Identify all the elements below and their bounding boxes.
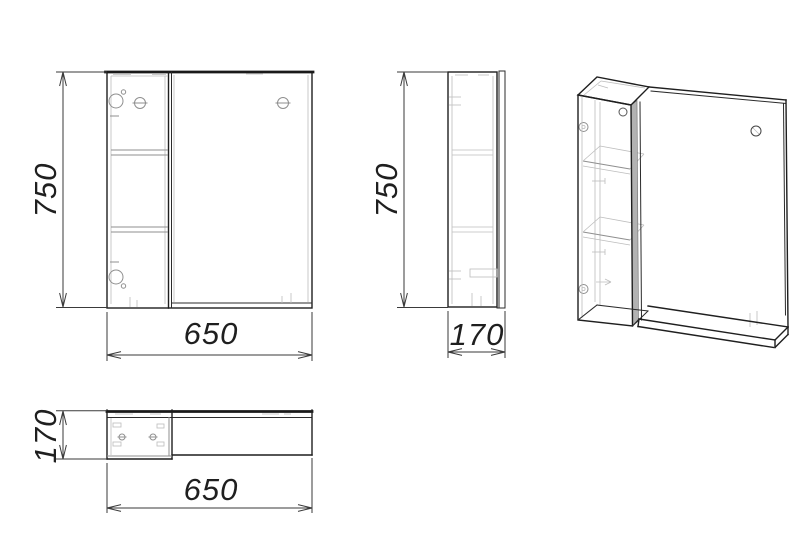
side-outline-rect	[448, 72, 497, 307]
side-height-dimension: 750	[369, 72, 448, 308]
front-height-dimension: 750	[28, 72, 107, 308]
top-box-details	[113, 423, 164, 446]
side-view: 750 170	[369, 71, 505, 358]
side-depth-label: 170	[450, 317, 505, 352]
iso-mirror-panel	[649, 87, 788, 327]
iso-top-screw-hole	[619, 108, 627, 116]
side-height-label: 750	[369, 163, 404, 218]
front-width-dimension: 650	[107, 312, 312, 361]
front-screw-hole-left	[133, 98, 148, 109]
top-width-dimension: 650	[107, 458, 312, 513]
iso-direction-arrow	[596, 279, 611, 285]
front-hinge-bottom	[109, 262, 126, 288]
front-height-label: 750	[28, 163, 63, 218]
cabinet-technical-drawing: 750 650	[0, 0, 800, 547]
iso-front-face	[578, 95, 633, 326]
isometric-view	[578, 77, 788, 348]
front-outline-rect	[107, 72, 312, 308]
side-depth-dimension: 170	[448, 311, 505, 358]
top-width-label: 650	[184, 472, 239, 507]
side-body-outline	[448, 71, 505, 308]
front-hinge-top	[109, 90, 126, 116]
front-width-label: 650	[184, 316, 239, 351]
iso-bottom-shelf	[633, 306, 789, 348]
front-shelf-lines	[111, 150, 168, 232]
iso-hinge-top	[579, 123, 588, 132]
top-depth-dimension: 170	[28, 409, 107, 464]
front-screw-hole-right	[276, 98, 291, 109]
iso-hinge-bottom	[579, 285, 588, 294]
technical-drawing-page: 750 650	[0, 0, 800, 547]
top-view: 170 650	[28, 409, 312, 513]
top-outline	[107, 410, 312, 459]
top-depth-label: 170	[28, 409, 63, 464]
front-view: 750 650	[28, 72, 313, 361]
front-bottom-details	[130, 293, 312, 307]
